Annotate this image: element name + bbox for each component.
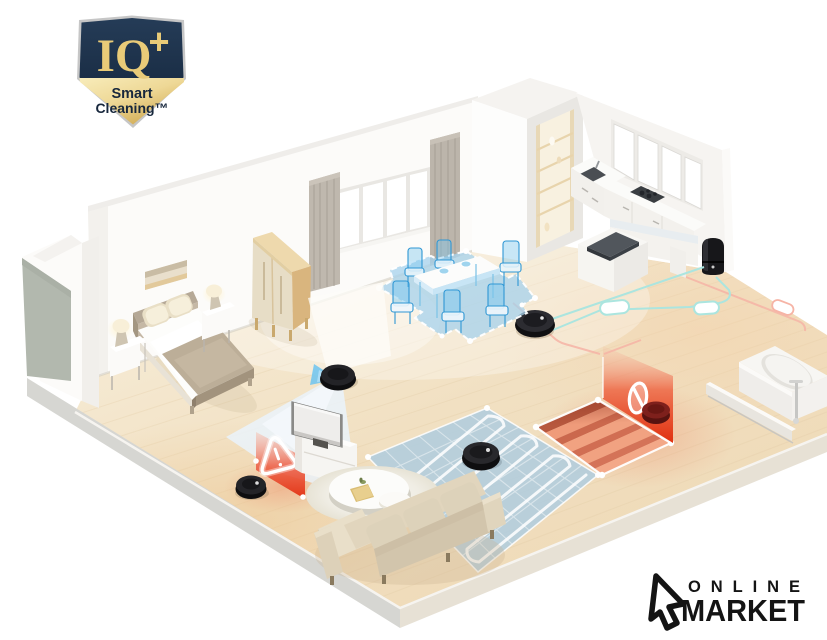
svg-text:IQ: IQ (97, 30, 152, 82)
svg-text:MARKET: MARKET (681, 593, 805, 628)
svg-text:Cleaning™: Cleaning™ (95, 100, 168, 116)
svg-text:+: + (148, 21, 169, 62)
